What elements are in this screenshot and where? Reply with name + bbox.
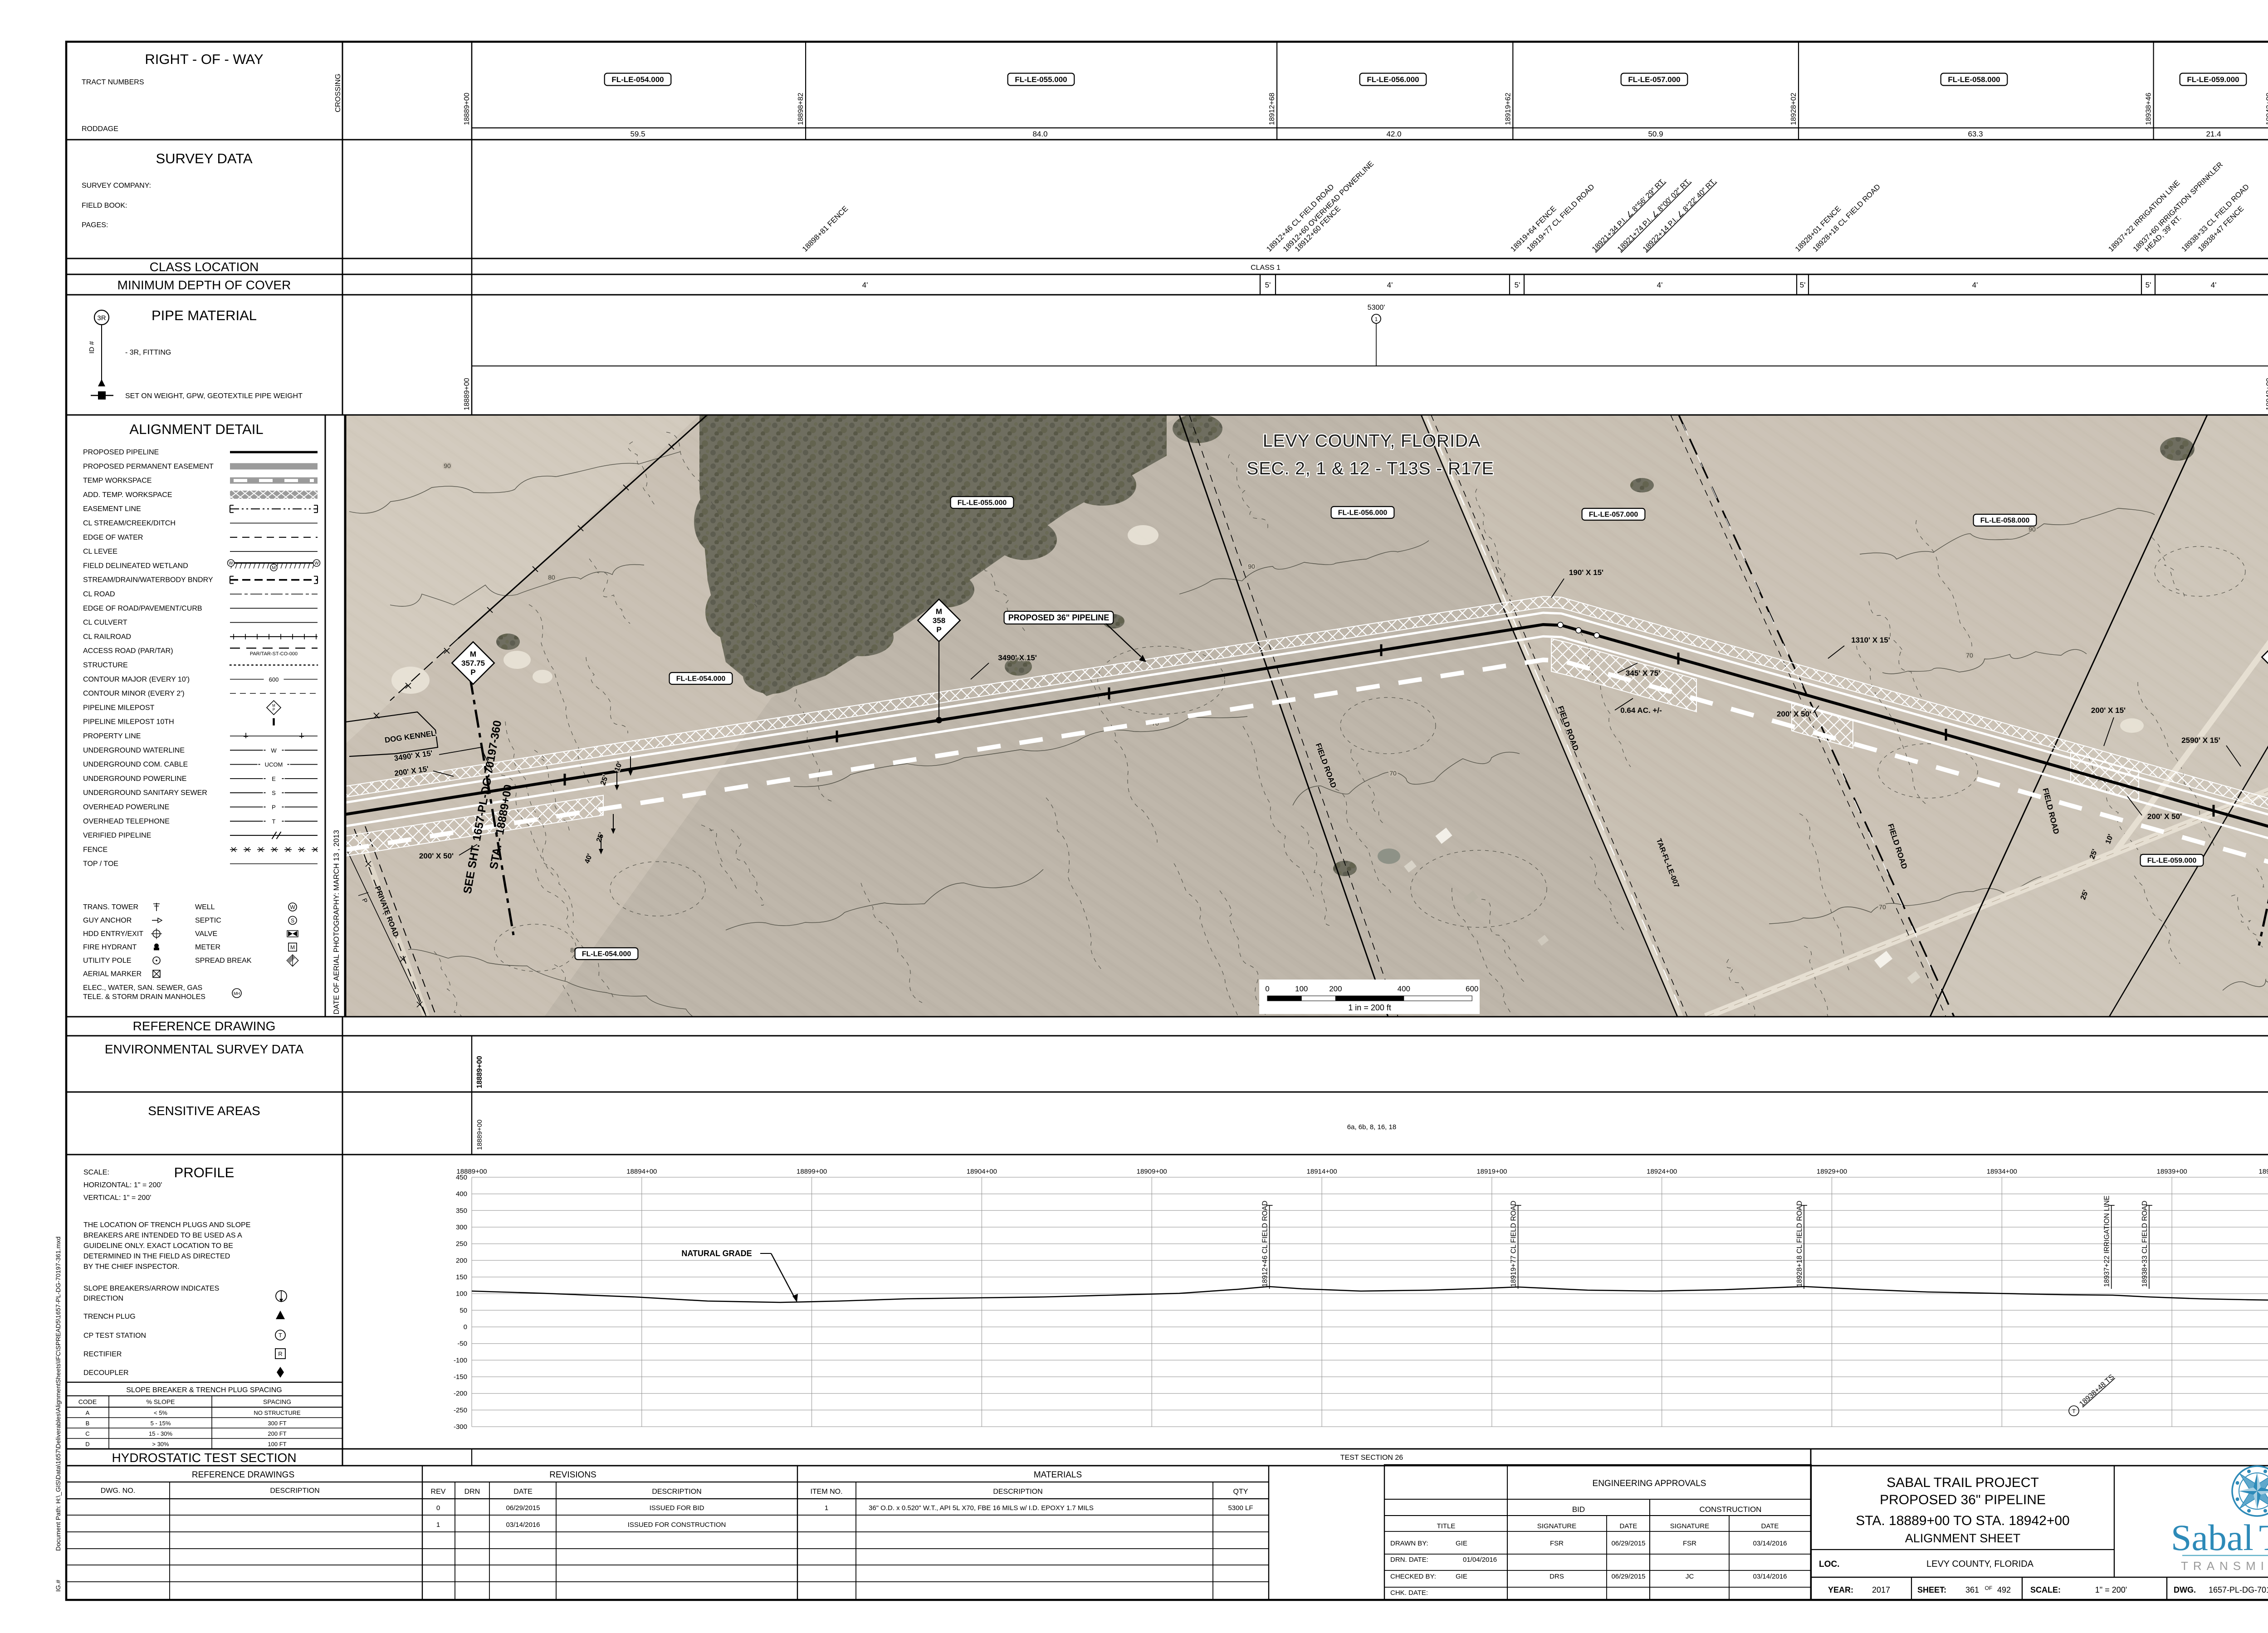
svg-text:HYDROSTATIC TEST SECTION: HYDROSTATIC TEST SECTION — [112, 1451, 296, 1465]
svg-text:DRN. DATE:: DRN. DATE: — [1390, 1556, 1428, 1564]
svg-text:5300 LF: 5300 LF — [1228, 1504, 1253, 1512]
svg-text:Trail: Trail — [2259, 1517, 2268, 1558]
svg-text:FIELD BOOK:: FIELD BOOK: — [82, 202, 127, 210]
svg-text:84.0: 84.0 — [1032, 130, 1047, 138]
svg-text:4': 4' — [1387, 281, 1393, 289]
svg-text:DRAWN BY:: DRAWN BY: — [1390, 1540, 1428, 1547]
svg-text:CL LEVEE: CL LEVEE — [83, 548, 117, 556]
svg-text:18939+00: 18939+00 — [2157, 1168, 2187, 1175]
svg-text:18914+00: 18914+00 — [1307, 1168, 1337, 1175]
svg-text:PROPOSED 36" PIPELINE: PROPOSED 36" PIPELINE — [1008, 613, 1110, 622]
svg-text:BY THE CHIEF INSPECTOR.: BY THE CHIEF INSPECTOR. — [83, 1263, 180, 1271]
svg-text:VALVE: VALVE — [195, 930, 217, 938]
svg-text:100 FT: 100 FT — [268, 1441, 286, 1448]
svg-text:190' X 15': 190' X 15' — [1569, 568, 1603, 577]
svg-text:200' X 50': 200' X 50' — [1777, 710, 1811, 718]
svg-text:ALIGNMENT DETAIL: ALIGNMENT DETAIL — [129, 421, 263, 437]
svg-text:21.4: 21.4 — [2206, 130, 2221, 138]
svg-text:5': 5' — [1265, 281, 1271, 289]
svg-text:FL-LE-059.000: FL-LE-059.000 — [2187, 75, 2239, 84]
svg-text:FL-LE-056.000: FL-LE-056.000 — [1338, 509, 1388, 517]
svg-text:FL-LE-055.000: FL-LE-055.000 — [1015, 75, 1067, 84]
svg-text:- 3R, FITTING: - 3R, FITTING — [125, 349, 171, 356]
svg-text:CL RAILROAD: CL RAILROAD — [83, 633, 131, 641]
svg-text:P: P — [470, 668, 475, 677]
svg-text:TITLE: TITLE — [1437, 1522, 1456, 1530]
svg-text:ISSUED FOR CONSTRUCTION: ISSUED FOR CONSTRUCTION — [628, 1521, 726, 1529]
svg-text:VERTICAL: 1" = 200': VERTICAL: 1" = 200' — [83, 1194, 151, 1202]
svg-text:GUIDELINE ONLY. EXACT LOCATIO: GUIDELINE ONLY. EXACT LOCATION TO BE — [83, 1242, 233, 1250]
svg-text:-250: -250 — [454, 1406, 467, 1414]
svg-text:METER: METER — [195, 944, 220, 951]
svg-text:CONSTRUCTION: CONSTRUCTION — [1700, 1505, 1762, 1514]
svg-text:0: 0 — [464, 1323, 467, 1331]
svg-text:ENVIRONMENTAL SURVEY DATA: ENVIRONMENTAL SURVEY DATA — [105, 1042, 304, 1056]
svg-text:18938+33 CL FIELD ROAD: 18938+33 CL FIELD ROAD — [2141, 1201, 2149, 1287]
svg-text:400: 400 — [456, 1190, 467, 1198]
svg-text:CL STREAM/CREEK/DITCH: CL STREAM/CREEK/DITCH — [83, 520, 176, 527]
svg-text:DESCRIPTION: DESCRIPTION — [993, 1488, 1042, 1496]
svg-text:QTY: QTY — [1233, 1488, 1248, 1496]
svg-text:6a, 6b, 8, 16, 18: 6a, 6b, 8, 16, 18 — [1347, 1123, 1396, 1131]
svg-text:2017: 2017 — [1872, 1585, 1890, 1594]
svg-text:18889+00: 18889+00 — [463, 93, 471, 125]
svg-text:18889+00: 18889+00 — [456, 1168, 487, 1175]
svg-text:200' X 50': 200' X 50' — [419, 852, 454, 860]
svg-text:HORIZONTAL: 1" = 200': HORIZONTAL: 1" = 200' — [83, 1181, 162, 1189]
svg-text:TOP / TOE: TOP / TOE — [83, 860, 118, 868]
svg-text:FL-LE-054.000: FL-LE-054.000 — [676, 675, 726, 682]
svg-text:SCALE:: SCALE: — [2030, 1585, 2061, 1594]
svg-text:358: 358 — [933, 616, 945, 625]
svg-text:70: 70 — [1389, 770, 1397, 777]
svg-text:18928+02: 18928+02 — [1790, 93, 1798, 125]
svg-text:T: T — [272, 818, 276, 825]
svg-text:PIPELINE MILEPOST 10TH: PIPELINE MILEPOST 10TH — [83, 718, 174, 726]
svg-text:SPACING: SPACING — [263, 1398, 291, 1405]
svg-text:-100: -100 — [454, 1356, 467, 1364]
svg-text:FL-LE-058.000: FL-LE-058.000 — [1980, 517, 2030, 524]
svg-text:TRANS. TOWER: TRANS. TOWER — [83, 903, 138, 911]
svg-text:18919+00: 18919+00 — [1476, 1168, 1507, 1175]
svg-text:42.0: 42.0 — [1386, 130, 1401, 138]
svg-text:18889+00: 18889+00 — [476, 1120, 484, 1150]
svg-text:18912+46 CL FIELD ROAD: 18912+46 CL FIELD ROAD — [1261, 1201, 1269, 1287]
svg-text:70: 70 — [1879, 903, 1886, 911]
svg-text:361: 361 — [1965, 1585, 1979, 1594]
svg-text:OF: OF — [1985, 1585, 1993, 1591]
svg-text:DECOUPLER: DECOUPLER — [83, 1369, 129, 1377]
svg-text:1310' X 15': 1310' X 15' — [1851, 636, 1890, 644]
svg-text:PROFILE: PROFILE — [174, 1165, 235, 1180]
svg-text:4': 4' — [862, 281, 868, 289]
svg-text:RIGHT - OF - WAY: RIGHT - OF - WAY — [145, 51, 263, 67]
svg-text:-200: -200 — [454, 1390, 467, 1398]
svg-text:03/14/2016: 03/14/2016 — [506, 1521, 540, 1529]
svg-text:DWG. NO.: DWG. NO. — [101, 1487, 135, 1495]
svg-text:HDD ENTRY/EXIT: HDD ENTRY/EXIT — [83, 930, 143, 938]
svg-text:FL-LE-056.000: FL-LE-056.000 — [1367, 75, 1419, 84]
svg-text:345' X 75': 345' X 75' — [1626, 669, 1660, 678]
svg-text:DRN: DRN — [464, 1488, 480, 1496]
svg-text:CHECKED BY:: CHECKED BY: — [1390, 1573, 1436, 1580]
svg-text:50: 50 — [459, 1306, 467, 1314]
svg-text:TRENCH PLUG: TRENCH PLUG — [83, 1313, 136, 1321]
svg-text:4': 4' — [2211, 281, 2217, 289]
svg-text:SIGNATURE: SIGNATURE — [1670, 1522, 1709, 1530]
svg-text:EDGE OF WATER: EDGE OF WATER — [83, 534, 143, 541]
svg-text:T: T — [2072, 1408, 2076, 1414]
svg-text:OVERHEAD TELEPHONE: OVERHEAD TELEPHONE — [83, 818, 170, 825]
svg-text:FIELD DELINEATED WETLAND: FIELD DELINEATED WETLAND — [83, 562, 188, 570]
svg-text:UNDERGROUND POWERLINE: UNDERGROUND POWERLINE — [83, 775, 186, 783]
svg-text:ACCESS ROAD (PAR/TAR): ACCESS ROAD (PAR/TAR) — [83, 647, 173, 655]
svg-text:DATE OF AERIAL PHOTOGRAPHY: MA: DATE OF AERIAL PHOTOGRAPHY: MARCH 13 , 2… — [332, 830, 341, 1014]
svg-text:S: S — [291, 917, 294, 924]
svg-text:1: 1 — [825, 1504, 828, 1512]
svg-text:FL-LE-054.000: FL-LE-054.000 — [611, 75, 664, 84]
svg-text:18899+00: 18899+00 — [797, 1168, 827, 1175]
svg-text:REVISIONS: REVISIONS — [549, 1470, 596, 1480]
svg-text:15 - 30%: 15 - 30% — [149, 1430, 172, 1437]
svg-text:M: M — [290, 944, 295, 951]
svg-text:W: W — [314, 561, 319, 566]
svg-text:18889+00: 18889+00 — [476, 1056, 484, 1088]
svg-text:600: 600 — [1466, 985, 1478, 993]
svg-text:18942+00: 18942+00 — [2265, 378, 2268, 410]
svg-text:S: S — [272, 790, 276, 796]
svg-text:600: 600 — [269, 676, 279, 683]
svg-text:BREAKERS ARE INTENDED TO BE US: BREAKERS ARE INTENDED TO BE USED AS A — [83, 1232, 242, 1239]
svg-text:Document Path: H:\_GIS\Data\16: Document Path: H:\_GIS\Data\1657\Deliver… — [54, 1237, 62, 1551]
svg-text:FL-LE-059.000: FL-LE-059.000 — [2147, 857, 2197, 864]
svg-text:PROPOSED PIPELINE: PROPOSED PIPELINE — [83, 448, 159, 456]
svg-text:YEAR:: YEAR: — [1828, 1585, 1853, 1594]
svg-text:200' X 50': 200' X 50' — [2147, 812, 2182, 821]
svg-text:PAR/TAR-ST-CO-000: PAR/TAR-ST-CO-000 — [250, 651, 298, 657]
svg-text:Sabal: Sabal — [2171, 1517, 2253, 1558]
svg-text:50.9: 50.9 — [1648, 130, 1663, 138]
svg-text:SURVEY COMPANY:: SURVEY COMPANY: — [82, 182, 151, 190]
svg-text:200' X 15': 200' X 15' — [2091, 706, 2126, 715]
svg-text:357.75: 357.75 — [461, 659, 485, 668]
svg-text:400: 400 — [1398, 985, 1410, 993]
svg-text:SHEET:: SHEET: — [1917, 1585, 1946, 1594]
svg-text:4': 4' — [1972, 281, 1978, 289]
svg-text:200: 200 — [1329, 985, 1342, 993]
svg-text:MINIMUM DEPTH OF COVER: MINIMUM DEPTH OF COVER — [117, 278, 291, 292]
svg-text:5 - 15%: 5 - 15% — [151, 1420, 171, 1427]
svg-text:80: 80 — [548, 574, 555, 581]
svg-text:AERIAL MARKER: AERIAL MARKER — [83, 970, 142, 978]
svg-text:M: M — [272, 565, 275, 570]
svg-text:RODDAGE: RODDAGE — [82, 125, 118, 133]
svg-text:CONTOUR MAJOR (EVERY 10'): CONTOUR MAJOR (EVERY 10') — [83, 676, 190, 683]
svg-text:E: E — [272, 775, 276, 782]
svg-text:1 in = 200 ft: 1 in = 200 ft — [1348, 1003, 1391, 1012]
svg-text:FL-LE-057.000: FL-LE-057.000 — [1589, 511, 1638, 518]
svg-text:18942+00: 18942+00 — [2265, 93, 2268, 125]
svg-text:SURVEY DATA: SURVEY DATA — [156, 151, 252, 166]
svg-text:SLOPE BREAKER & TRENCH PLUG SP: SLOPE BREAKER & TRENCH PLUG SPACING — [126, 1386, 282, 1394]
svg-text:TELE. & STORM DRAIN MANHOLES: TELE. & STORM DRAIN MANHOLES — [83, 993, 205, 1001]
svg-text:TRACT NUMBERS: TRACT NUMBERS — [82, 78, 144, 86]
svg-text:70: 70 — [1966, 652, 1973, 659]
svg-text:DESCRIPTION: DESCRIPTION — [652, 1488, 701, 1496]
svg-text:CODE: CODE — [78, 1398, 97, 1405]
svg-text:UNDERGROUND SANITARY SEWER: UNDERGROUND SANITARY SEWER — [83, 789, 207, 797]
svg-text:18898+82: 18898+82 — [797, 93, 805, 125]
svg-text:5': 5' — [2146, 281, 2151, 289]
svg-text:18929+00: 18929+00 — [1817, 1168, 1847, 1175]
svg-text:03/14/2016: 03/14/2016 — [1753, 1573, 1787, 1580]
svg-text:W: W — [271, 747, 277, 754]
svg-text:18942+00: 18942+00 — [2258, 1168, 2268, 1175]
svg-text:DWG.: DWG. — [2174, 1585, 2196, 1594]
svg-text:NATURAL GRADE: NATURAL GRADE — [681, 1249, 752, 1258]
svg-text:P: P — [273, 707, 275, 712]
svg-text:MH: MH — [234, 991, 240, 996]
svg-text:SCALE:: SCALE: — [83, 1169, 109, 1176]
svg-text:SPREAD BREAK: SPREAD BREAK — [195, 957, 252, 965]
svg-text:PAGES:: PAGES: — [82, 221, 108, 229]
svg-text:-50: -50 — [457, 1340, 467, 1348]
svg-text:FENCE: FENCE — [83, 846, 108, 853]
svg-text:CLASS 1: CLASS 1 — [1251, 264, 1281, 272]
svg-text:REFERENCE DRAWINGS: REFERENCE DRAWINGS — [192, 1470, 294, 1480]
svg-text:300 FT: 300 FT — [268, 1420, 286, 1427]
svg-text:JC: JC — [1686, 1573, 1694, 1580]
svg-text:FL-LE-057.000: FL-LE-057.000 — [1628, 75, 1680, 84]
svg-text:P: P — [272, 804, 276, 811]
svg-text:DESCRIPTION: DESCRIPTION — [270, 1487, 319, 1495]
svg-text:P: P — [936, 625, 941, 634]
svg-text:LOC.: LOC. — [1819, 1560, 1839, 1569]
svg-text:NO STRUCTURE: NO STRUCTURE — [254, 1409, 301, 1416]
svg-text:LEVY COUNTY, FLORIDA: LEVY COUNTY, FLORIDA — [1926, 1559, 2034, 1569]
svg-text:90: 90 — [2028, 526, 2036, 533]
svg-text:DIRECTION: DIRECTION — [83, 1295, 123, 1302]
svg-text:350: 350 — [456, 1207, 467, 1214]
svg-text:250: 250 — [456, 1240, 467, 1248]
svg-text:SET ON WEIGHT, GPW, GEOTEXTILE: SET ON WEIGHT, GPW, GEOTEXTILE PIPE WEIG… — [125, 392, 303, 400]
svg-text:% SLOPE: % SLOPE — [146, 1398, 175, 1405]
svg-text:ITEM NO.: ITEM NO. — [810, 1488, 842, 1496]
svg-text:CROSSING: CROSSING — [334, 73, 342, 112]
svg-text:06/29/2015: 06/29/2015 — [1611, 1540, 1645, 1547]
svg-text:TEMP WORKSPACE: TEMP WORKSPACE — [83, 477, 152, 485]
svg-text:200: 200 — [456, 1257, 467, 1264]
svg-text:2590' X 15': 2590' X 15' — [2181, 736, 2220, 745]
svg-text:36" O.D. x 0.520" W.T., API 5L: 36" O.D. x 0.520" W.T., API 5L X70, FBE … — [869, 1504, 1094, 1512]
svg-text:18919+77 CL FIELD ROAD: 18919+77 CL FIELD ROAD — [1510, 1201, 1518, 1287]
svg-text:CLASS LOCATION: CLASS LOCATION — [150, 260, 259, 274]
svg-text:18919+62: 18919+62 — [1504, 93, 1512, 125]
svg-text:90: 90 — [444, 462, 451, 469]
svg-text:T: T — [279, 1332, 282, 1339]
svg-text:SEPTIC: SEPTIC — [195, 917, 221, 925]
svg-text:M: M — [936, 607, 942, 616]
svg-text:18938+46: 18938+46 — [2145, 93, 2153, 125]
svg-text:5300': 5300' — [1368, 304, 1385, 312]
svg-text:0: 0 — [1265, 985, 1269, 993]
svg-text:W: W — [290, 904, 295, 911]
svg-text:W: W — [229, 561, 233, 566]
svg-text:STRUCTURE: STRUCTURE — [83, 662, 128, 669]
svg-text:FL-LE-058.000: FL-LE-058.000 — [1948, 75, 2000, 84]
svg-text:492: 492 — [1997, 1585, 2011, 1594]
svg-text:FSR: FSR — [1550, 1540, 1564, 1547]
svg-text:M: M — [272, 703, 275, 707]
svg-text:< 5%: < 5% — [154, 1409, 167, 1416]
svg-text:DATE: DATE — [1620, 1522, 1637, 1530]
svg-text:1: 1 — [436, 1521, 440, 1529]
svg-text:ID #: ID # — [88, 341, 96, 354]
svg-text:RECTIFIER: RECTIFIER — [83, 1350, 122, 1358]
svg-text:PROPOSED 36" PIPELINE: PROPOSED 36" PIPELINE — [1880, 1492, 2046, 1507]
svg-text:63.3: 63.3 — [1968, 130, 1983, 138]
svg-text:1657-PL-DG-70197-361: 1657-PL-DG-70197-361 — [2209, 1585, 2268, 1594]
svg-text:IG.#: IG.# — [54, 1579, 62, 1592]
svg-text:EASEMENT LINE: EASEMENT LINE — [83, 505, 141, 513]
svg-text:300: 300 — [456, 1224, 467, 1231]
svg-text:A: A — [86, 1409, 90, 1416]
svg-text:SEC. 2, 1 & 12 - T13S - R17E: SEC. 2, 1 & 12 - T13S - R17E — [1246, 459, 1494, 478]
svg-text:UTILITY POLE: UTILITY POLE — [83, 957, 131, 965]
svg-text:DRS: DRS — [1549, 1573, 1564, 1580]
svg-text:18909+00: 18909+00 — [1137, 1168, 1167, 1175]
svg-text:-150: -150 — [454, 1373, 467, 1381]
svg-text:D: D — [85, 1441, 89, 1448]
svg-text:18894+00: 18894+00 — [626, 1168, 657, 1175]
svg-text:0: 0 — [436, 1504, 440, 1512]
svg-text:5': 5' — [1515, 281, 1520, 289]
svg-text:1" = 200': 1" = 200' — [2095, 1585, 2127, 1594]
svg-text:CL ROAD: CL ROAD — [83, 590, 115, 598]
svg-text:SIGNATURE: SIGNATURE — [1537, 1522, 1576, 1530]
svg-text:3490' X 15': 3490' X 15' — [998, 653, 1037, 662]
svg-text:UCOM: UCOM — [265, 761, 283, 768]
svg-text:DATE: DATE — [1761, 1522, 1779, 1530]
svg-text:100: 100 — [1295, 985, 1308, 993]
svg-text:REFERENCE DRAWING: REFERENCE DRAWING — [133, 1019, 276, 1033]
svg-text:STREAM/DRAIN/WATERBODY BNDRY: STREAM/DRAIN/WATERBODY BNDRY — [83, 576, 213, 584]
svg-text:GUY ANCHOR: GUY ANCHOR — [83, 917, 132, 925]
svg-text:GIE: GIE — [1456, 1573, 1467, 1580]
svg-text:0.64 AC. +/-: 0.64 AC. +/- — [1620, 706, 1662, 715]
svg-text:SENSITIVE AREAS: SENSITIVE AREAS — [148, 1104, 260, 1118]
svg-text:3R: 3R — [97, 314, 106, 322]
svg-text:18924+00: 18924+00 — [1647, 1168, 1677, 1175]
svg-text:BID: BID — [1572, 1505, 1585, 1514]
svg-text:CONTOUR MINOR (EVERY 2'): CONTOUR MINOR (EVERY 2') — [83, 690, 185, 697]
svg-text:STA. 18889+00 TO STA. 18942+00: STA. 18889+00 TO STA. 18942+00 — [1856, 1513, 2069, 1528]
svg-text:C: C — [85, 1430, 89, 1437]
svg-text:ELEC., WATER, SAN. SEWER, GAS: ELEC., WATER, SAN. SEWER, GAS — [83, 984, 202, 992]
svg-text:PIPELINE MILEPOST: PIPELINE MILEPOST — [83, 704, 155, 712]
svg-text:SABAL TRAIL PROJECT: SABAL TRAIL PROJECT — [1887, 1475, 2039, 1490]
svg-text:R: R — [278, 1350, 282, 1357]
svg-text:5': 5' — [1800, 281, 1806, 289]
svg-text:CL CULVERT: CL CULVERT — [83, 619, 127, 627]
svg-text:1: 1 — [1375, 316, 1378, 322]
svg-text:SLOPE BREAKERS/ARROW INDICATES: SLOPE BREAKERS/ARROW INDICATES — [83, 1285, 219, 1292]
svg-text:DETERMINED IN THE FIELD AS DIR: DETERMINED IN THE FIELD AS DIRECTED — [83, 1253, 230, 1260]
svg-text:200 FT: 200 FT — [268, 1430, 286, 1437]
svg-text:ADD. TEMP. WORKSPACE: ADD. TEMP. WORKSPACE — [83, 491, 172, 499]
svg-text:WELL: WELL — [195, 903, 215, 911]
svg-text:MATERIALS: MATERIALS — [1034, 1470, 1082, 1480]
svg-text:TRANSMISSION: TRANSMISSION — [2181, 1559, 2268, 1573]
svg-text:DATE: DATE — [513, 1488, 532, 1496]
svg-text:LEVY COUNTY, FLORIDA: LEVY COUNTY, FLORIDA — [1263, 431, 1481, 451]
svg-text:REV: REV — [431, 1488, 446, 1496]
svg-text:90: 90 — [1248, 563, 1255, 570]
svg-text:PIPE MATERIAL: PIPE MATERIAL — [152, 307, 257, 323]
svg-text:FSR: FSR — [1683, 1540, 1696, 1547]
svg-text:B: B — [86, 1420, 90, 1427]
svg-text:18937+22 IRRIGATION LINE: 18937+22 IRRIGATION LINE — [2103, 1195, 2111, 1287]
svg-text:PROPOSED PERMANENT EASEMENT: PROPOSED PERMANENT EASEMENT — [83, 463, 214, 470]
svg-text:VERIFIED PIPELINE: VERIFIED PIPELINE — [83, 832, 151, 839]
svg-text:18934+00: 18934+00 — [1987, 1168, 2017, 1175]
svg-text:18904+00: 18904+00 — [967, 1168, 997, 1175]
svg-text:18928+18 CL FIELD ROAD: 18928+18 CL FIELD ROAD — [1796, 1201, 1804, 1287]
svg-text:18912+68: 18912+68 — [1268, 93, 1276, 125]
svg-text:THE LOCATION OF TRENCH PLUGS A: THE LOCATION OF TRENCH PLUGS AND SLOPE — [83, 1221, 250, 1229]
svg-text:> 30%: > 30% — [152, 1441, 169, 1448]
svg-text:4': 4' — [1657, 281, 1663, 289]
svg-text:06/29/2015: 06/29/2015 — [1611, 1573, 1645, 1580]
svg-text:FL-LE-054.000: FL-LE-054.000 — [582, 950, 631, 958]
svg-text:TEST SECTION 26: TEST SECTION 26 — [1340, 1454, 1403, 1462]
svg-text:ISSUED FOR BID: ISSUED FOR BID — [650, 1504, 704, 1512]
svg-text:18889+00: 18889+00 — [463, 378, 471, 410]
svg-text:PROPERTY LINE: PROPERTY LINE — [83, 732, 141, 740]
svg-text:FL-LE-055.000: FL-LE-055.000 — [958, 499, 1007, 507]
svg-text:59.5: 59.5 — [630, 130, 645, 138]
svg-text:03/14/2016: 03/14/2016 — [1753, 1540, 1787, 1547]
svg-text:150: 150 — [456, 1273, 467, 1281]
svg-text:UNDERGROUND COM. CABLE: UNDERGROUND COM. CABLE — [83, 761, 188, 769]
svg-text:ALIGNMENT SHEET: ALIGNMENT SHEET — [1905, 1531, 2021, 1545]
svg-text:FIRE HYDRANT: FIRE HYDRANT — [83, 944, 137, 951]
svg-text:M: M — [470, 650, 476, 658]
svg-text:CP TEST STATION: CP TEST STATION — [83, 1332, 146, 1340]
svg-text:06/29/2015: 06/29/2015 — [506, 1504, 540, 1512]
svg-text:UNDERGROUND WATERLINE: UNDERGROUND WATERLINE — [83, 746, 185, 754]
svg-text:01/04/2016: 01/04/2016 — [1463, 1556, 1497, 1564]
svg-text:EDGE OF ROAD/PAVEMENT/CURB: EDGE OF ROAD/PAVEMENT/CURB — [83, 604, 202, 612]
svg-text:100: 100 — [456, 1290, 467, 1298]
svg-text:GIE: GIE — [1456, 1540, 1467, 1547]
svg-text:-300: -300 — [454, 1423, 467, 1431]
svg-text:OVERHEAD POWERLINE: OVERHEAD POWERLINE — [83, 804, 169, 811]
svg-text:ENGINEERING APPROVALS: ENGINEERING APPROVALS — [1593, 1479, 1706, 1488]
svg-text:CHK. DATE:: CHK. DATE: — [1390, 1589, 1428, 1597]
